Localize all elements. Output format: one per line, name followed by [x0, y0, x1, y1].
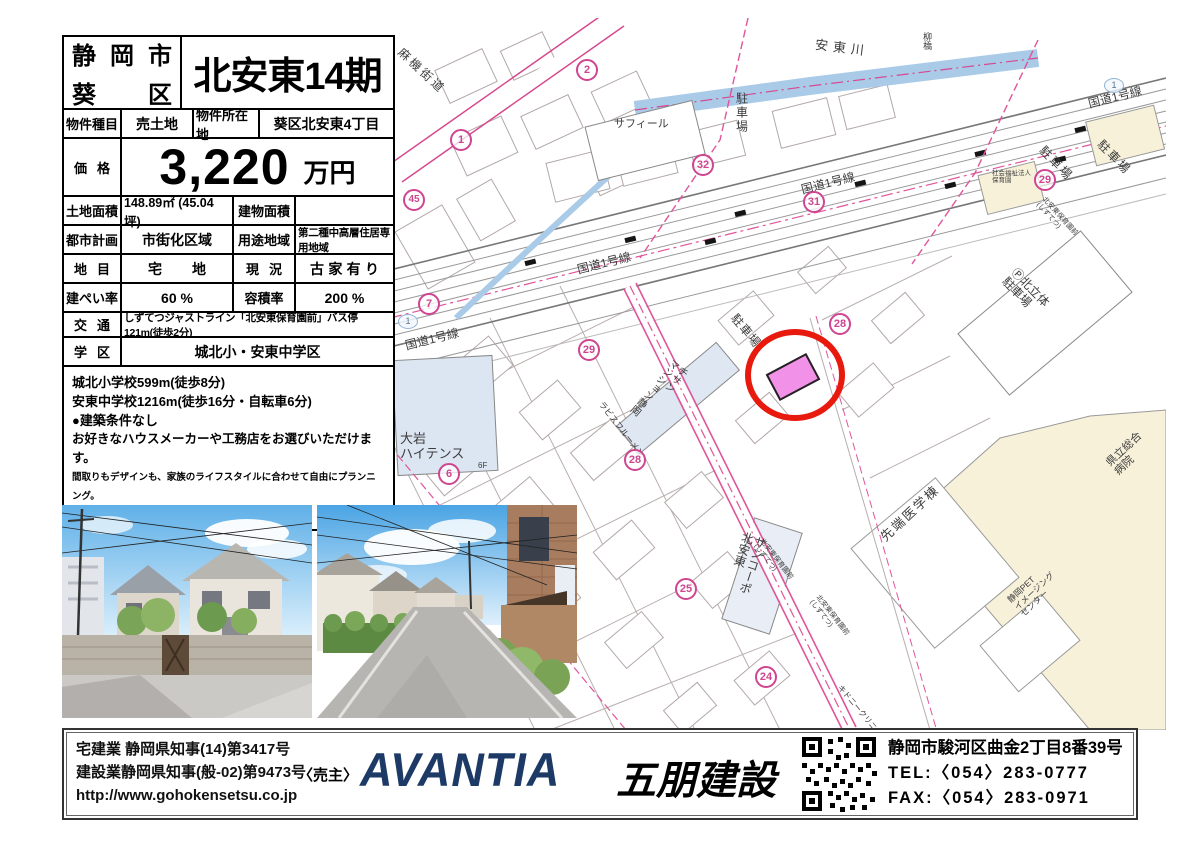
- map-badge: 24: [755, 666, 777, 688]
- land-category-label: 地目: [66, 259, 118, 278]
- row-transport: 交通 しずてつジャストライン「北安東保育園前」バス停121m(徒歩2分): [64, 311, 393, 336]
- note-line: ●建築条件なし: [72, 411, 385, 430]
- row-ratios: 建ぺい率 60 % 容積率 200 %: [64, 282, 393, 311]
- map-label-parking: 駐車場: [734, 92, 747, 134]
- row-property-type: 物件種目 売土地 物件所在地 葵区北安東4丁目: [64, 108, 393, 137]
- map-label-floors: 6F: [478, 462, 487, 471]
- row-land-category: 地目 宅地 現況 古家有り: [64, 253, 393, 282]
- coverage-ratio-label: 建ぺい率: [64, 284, 122, 311]
- company-address: 静岡市駿河区曲金2丁目8番39号: [888, 736, 1123, 761]
- seller-label: 〈売主〉: [298, 764, 358, 785]
- city-line1: 静岡市: [72, 36, 172, 71]
- land-category-value: 宅地: [124, 259, 230, 279]
- map-badge: 28: [829, 313, 851, 335]
- transport-value: しずてつジャストライン「北安東保育園前」バス停121m(徒歩2分): [122, 313, 393, 336]
- floor-ratio-label: 容積率: [234, 284, 296, 311]
- zoning-value: 第二種中高層住居専用地域: [296, 226, 393, 253]
- status-label: 現況: [236, 259, 292, 278]
- city-line2: 葵区: [72, 75, 172, 110]
- license-block: 宅建業 静岡県知事(14)第3417号 建設業静岡県知事(般-02)第9473号…: [76, 738, 306, 807]
- location-value: 葵区北安東4丁目: [260, 110, 393, 137]
- map-badge: 1: [450, 129, 472, 151]
- school-label: 学区: [66, 342, 118, 361]
- location-label: 物件所在地: [194, 110, 260, 137]
- floor-ratio-value: 200 %: [296, 284, 393, 311]
- map-label-building: サフィール: [614, 118, 669, 130]
- map-badge: 29: [1034, 169, 1056, 191]
- land-area-label: 土地面積: [64, 197, 122, 224]
- photo-street: [317, 505, 577, 718]
- building-area-value: [296, 197, 393, 224]
- row-school: 学区 城北小・安東中学区: [64, 336, 393, 365]
- map-badge: 28: [624, 449, 646, 471]
- property-panel: 静岡市 葵区 北安東14期 物件種目 売土地 物件所在地 葵区北安東4丁目 価格…: [62, 35, 395, 531]
- map-label-building: 大岩 ハイテンス: [400, 432, 464, 461]
- company-url[interactable]: http://www.gohokensetsu.co.jp: [76, 784, 306, 807]
- note-line: 安東中学校1216m(徒歩16分・自転車6分): [72, 392, 385, 411]
- note-line: お好きなハウスメーカーや工務店をお選びいただけます。: [72, 430, 385, 468]
- coverage-ratio-value: 60 %: [122, 284, 234, 311]
- transport-label: 交通: [66, 315, 118, 334]
- building-area-label: 建物面積: [234, 197, 296, 224]
- status-value: 古家有り: [298, 259, 391, 279]
- map-badge: 31: [803, 191, 825, 213]
- city-ward: 静岡市 葵区: [64, 37, 182, 108]
- land-area-value: 148.89㎡ (45.04坪): [122, 197, 234, 224]
- note-line: 間取りもデザインも、家族のライフスタイルに合わせて自由にプランニング。: [72, 468, 385, 506]
- row-area: 土地面積 148.89㎡ (45.04坪) 建物面積: [64, 195, 393, 224]
- property-type-value: 売土地: [122, 110, 194, 137]
- city-plan-label: 都市計画: [64, 226, 122, 253]
- photo-exterior: [62, 505, 312, 718]
- property-type-label: 物件種目: [64, 110, 122, 137]
- license-takken: 宅建業 静岡県知事(14)第3417号: [76, 738, 306, 761]
- row-price: 価格 3,220 万円: [64, 137, 393, 195]
- map-badge: 6: [438, 463, 460, 485]
- property-marker-circle: [745, 329, 845, 421]
- map-label-bridge: 柳橋: [922, 32, 932, 50]
- zoning-label: 用途地域: [234, 226, 296, 253]
- route-1-shield: 1: [1104, 78, 1124, 93]
- map-badge: 32: [692, 154, 714, 176]
- price-value: 3,220: [159, 142, 289, 192]
- map-badge: 7: [418, 293, 440, 315]
- city-plan-value: 市街化区域: [122, 226, 234, 253]
- map-label-nursery: 社会福祉法人 保育園: [992, 170, 1031, 185]
- map-badge: 45: [403, 189, 425, 211]
- qr-code: [800, 735, 878, 813]
- row-plan: 都市計画 市街化区域 用途地域 第二種中高層住居専用地域: [64, 224, 393, 253]
- map-badge: 29: [578, 339, 600, 361]
- company-fax: FAX:〈054〉283-0971: [888, 786, 1123, 811]
- footer: 宅建業 静岡県知事(14)第3417号 建設業静岡県知事(般-02)第9473号…: [62, 728, 1138, 820]
- avantia-logo: AVANTIA: [360, 743, 560, 798]
- note-line: 城北小学校599m(徒歩8分): [72, 373, 385, 392]
- address-block: 静岡市駿河区曲金2丁目8番39号 TEL:〈054〉283-0777 FAX:〈…: [888, 736, 1123, 811]
- price-label: 価格: [66, 158, 118, 177]
- flyer-page: 麻機街道 安東川 柳橋 国道1号線 国道1号線 国道1号線 国道1号線 駐車場 …: [0, 0, 1200, 848]
- route-1-shield: 1: [398, 314, 418, 329]
- company-tel: TEL:〈054〉283-0777: [888, 761, 1123, 786]
- map-badge: 25: [675, 578, 697, 600]
- page-title: 北安東14期: [182, 37, 393, 108]
- company-name: 五朋建設: [616, 748, 776, 806]
- price-unit: 万円: [304, 153, 356, 194]
- school-value: 城北小・安東中学区: [122, 338, 393, 365]
- license-kensetsu: 建設業静岡県知事(般-02)第9473号: [76, 761, 306, 784]
- map-badge: 2: [576, 59, 598, 81]
